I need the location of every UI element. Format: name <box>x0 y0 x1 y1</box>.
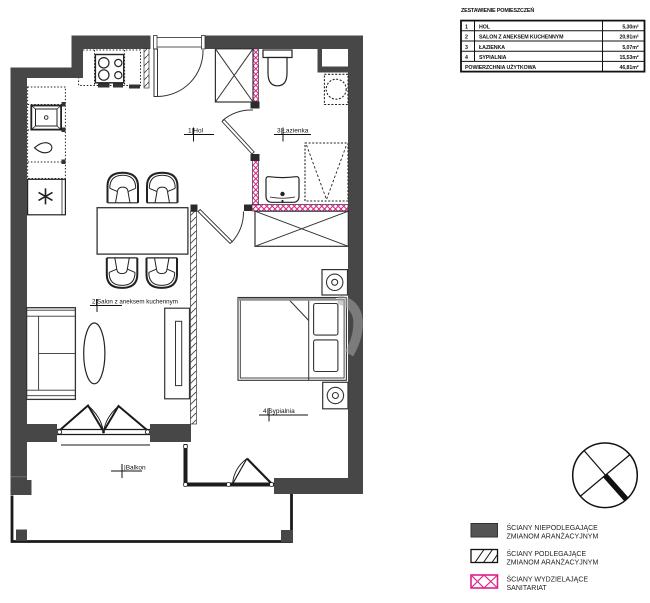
svg-text:POWIERZCHNIA UŻYTKOWA: POWIERZCHNIA UŻYTKOWA <box>465 64 536 71</box>
svg-text:2|Salon z aneksem kuchennym: 2|Salon z aneksem kuchennym <box>92 299 178 306</box>
svg-text:ZMIANOM ARANŻACYJNYM: ZMIANOM ARANŻACYJNYM <box>507 532 599 541</box>
svg-text:1: 1 <box>465 24 468 30</box>
svg-text:4|Sypialnia: 4|Sypialnia <box>263 408 295 415</box>
svg-text:SALON Z ANEKSEM KUCHENNYM: SALON Z ANEKSEM KUCHENNYM <box>479 35 564 41</box>
svg-text:5,07m²: 5,07m² <box>622 45 639 51</box>
svg-text:HOL: HOL <box>479 24 491 30</box>
svg-text:4: 4 <box>465 55 468 61</box>
svg-text:1|Hol: 1|Hol <box>188 128 204 135</box>
svg-text:ZESTAWIENIE POMIESZCZEŃ: ZESTAWIENIE POMIESZCZEŃ <box>461 6 534 14</box>
svg-text:5,30m²: 5,30m² <box>622 24 639 30</box>
svg-text:ŚCIANY NIEPODLEGAJĄCE: ŚCIANY NIEPODLEGAJĄCE <box>507 523 599 532</box>
svg-text:ZMIANOM ARANŻACYJNYM: ZMIANOM ARANŻACYJNYM <box>507 558 599 567</box>
svg-text:15,53m²: 15,53m² <box>619 55 638 61</box>
svg-text:20,91m²: 20,91m² <box>619 35 638 41</box>
svg-text:ŁAZIENKA: ŁAZIENKA <box>479 45 505 51</box>
svg-text:3: 3 <box>465 45 468 51</box>
svg-text:SYPIALNIA: SYPIALNIA <box>479 55 507 61</box>
svg-text:SANITARIAT: SANITARIAT <box>507 585 548 592</box>
svg-text:46,81m²: 46,81m² <box>619 65 638 71</box>
svg-text:|Balkon: |Balkon <box>124 465 146 472</box>
svg-text:2: 2 <box>465 35 468 41</box>
svg-text:ŚCIANY PODLEGAJĄCE: ŚCIANY PODLEGAJĄCE <box>507 549 587 558</box>
svg-text:3|Łazienka: 3|Łazienka <box>277 128 309 135</box>
svg-text:ŚCIANY WYDZIELAJĄCE: ŚCIANY WYDZIELAJĄCE <box>507 575 589 584</box>
